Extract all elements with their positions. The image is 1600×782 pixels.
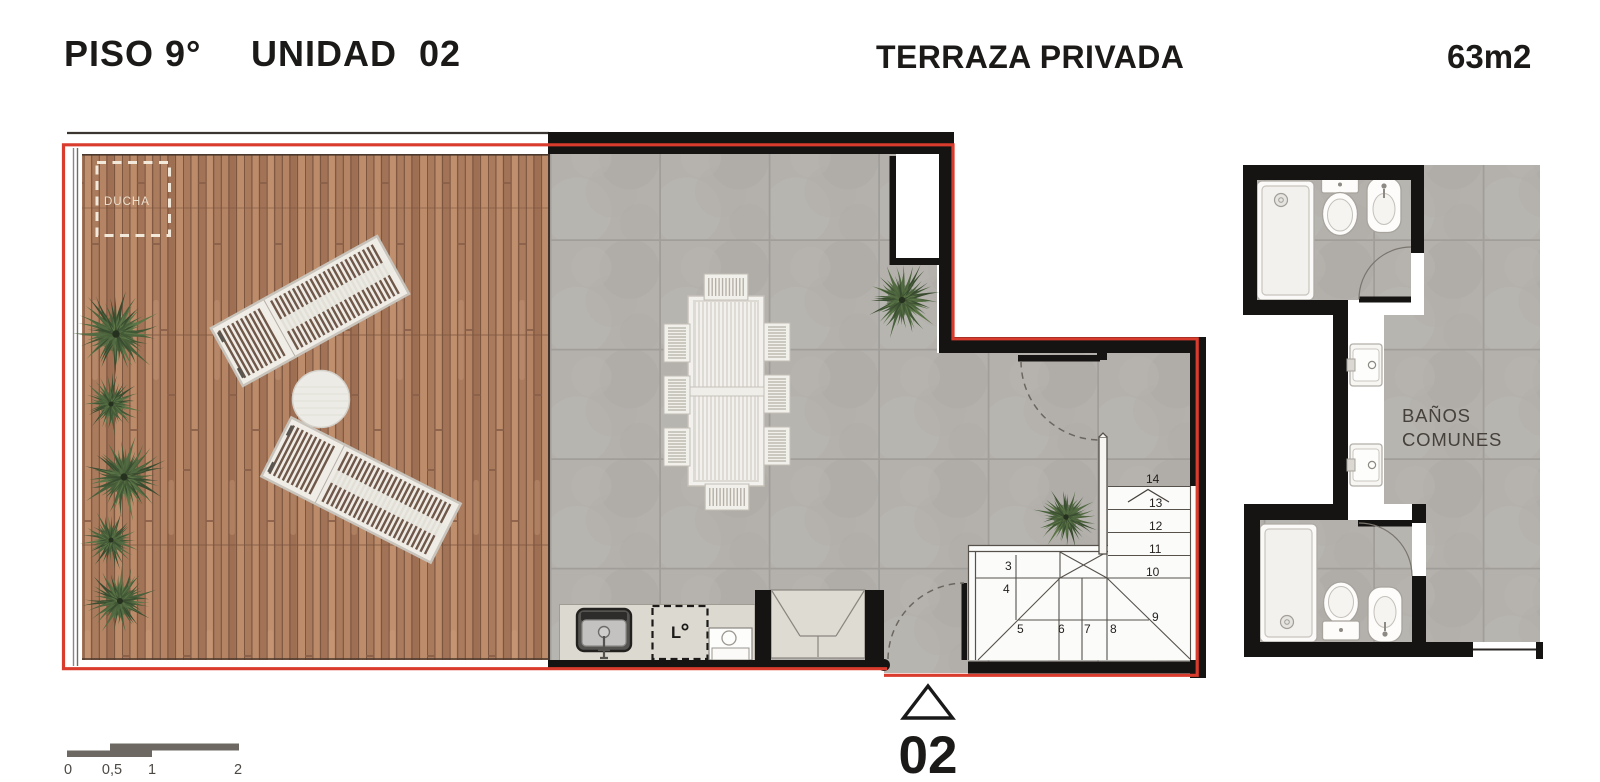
svg-text:13: 13 <box>1149 496 1163 510</box>
svg-text:2: 2 <box>234 762 242 778</box>
svg-text:0: 0 <box>64 762 72 778</box>
svg-text:L: L <box>671 624 681 642</box>
svg-text:TERRAZA PRIVADA: TERRAZA PRIVADA <box>876 39 1184 75</box>
svg-text:3: 3 <box>1005 559 1012 573</box>
svg-text:COMUNES: COMUNES <box>1402 429 1502 450</box>
svg-text:0,5: 0,5 <box>102 762 122 778</box>
svg-text:63m2: 63m2 <box>1447 38 1531 75</box>
svg-text:5: 5 <box>1017 622 1024 636</box>
svg-text:6: 6 <box>1058 622 1065 636</box>
svg-text:7: 7 <box>1084 622 1091 636</box>
svg-text:BAÑOS: BAÑOS <box>1402 405 1471 426</box>
svg-text:10: 10 <box>1146 565 1160 579</box>
svg-text:1: 1 <box>148 762 156 778</box>
svg-text:12: 12 <box>1149 519 1163 533</box>
svg-text:9: 9 <box>1152 610 1159 624</box>
svg-text:14: 14 <box>1146 472 1160 486</box>
svg-text:DUCHA: DUCHA <box>104 196 150 208</box>
svg-text:11: 11 <box>1149 542 1162 556</box>
svg-text:4: 4 <box>1003 582 1010 596</box>
svg-text:UNIDAD 02: UNIDAD 02 <box>251 33 461 74</box>
svg-text:PISO 9°: PISO 9° <box>64 33 201 74</box>
svg-text:02: 02 <box>899 726 958 782</box>
svg-text:8: 8 <box>1110 622 1117 636</box>
